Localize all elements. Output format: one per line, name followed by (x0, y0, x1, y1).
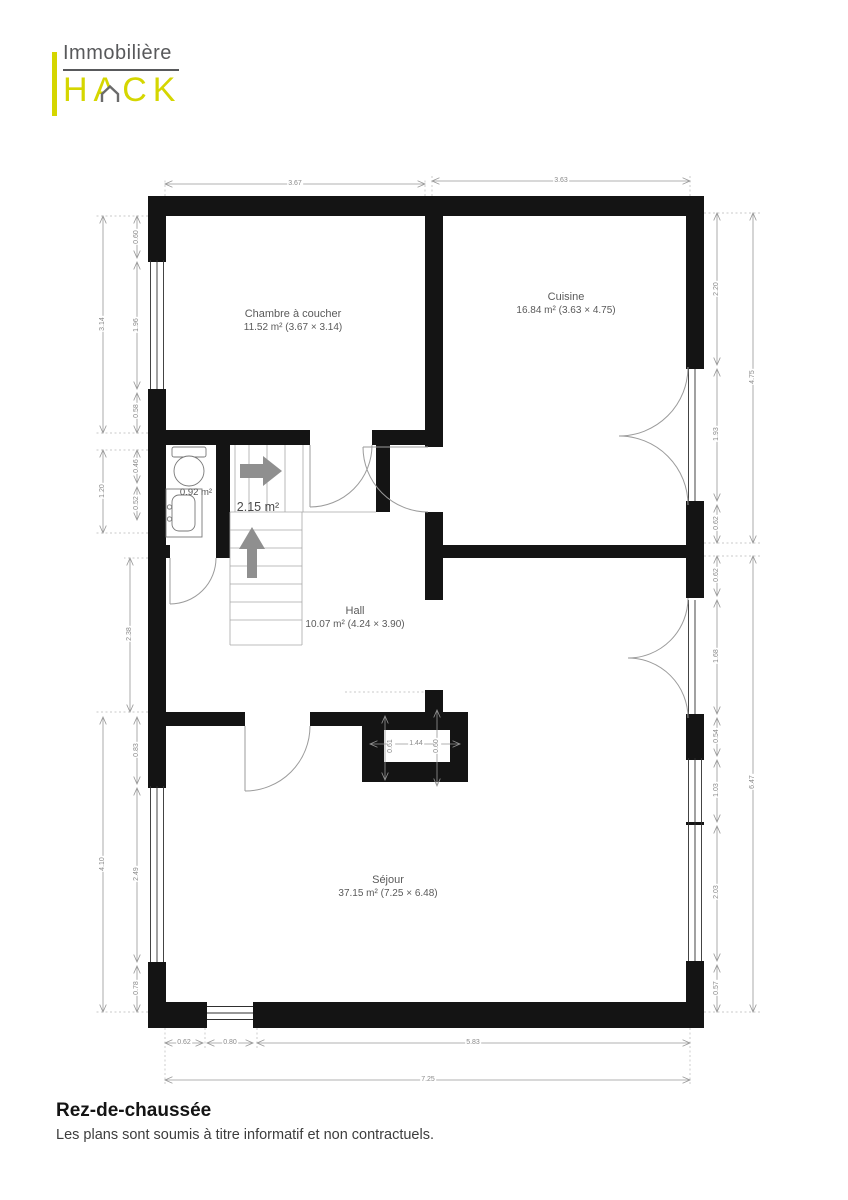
dimension-label: 1.44 (408, 740, 424, 748)
arrow-right-icon (240, 456, 282, 486)
dimension-label: 0.78 (133, 980, 141, 996)
room-area-value: 10.07 m² (305, 619, 344, 630)
room-area: 11.52 m² (3.67 × 3.14) (244, 322, 343, 335)
dimension-label: 2.38 (126, 626, 134, 642)
room-label-chambre: Chambre à coucher 11.52 m² (3.67 × 3.14) (244, 308, 343, 334)
logo-brand-name: Immobilière (63, 42, 181, 65)
dimension-label: 0.62 (713, 515, 721, 531)
dimension-label: 0.62 (713, 567, 721, 583)
walls (148, 196, 704, 1028)
room-label-sejour: Séjour 37.15 m² (7.25 × 6.48) (338, 874, 437, 900)
dimension-label: 7.25 (420, 1076, 436, 1084)
logo-brand-word: HACK (63, 73, 181, 109)
dimension-label: 4.10 (99, 856, 107, 872)
floor-plan-drawing (0, 0, 848, 1200)
dimension-label: 0.52 (133, 495, 141, 511)
room-label-hall: Hall 10.07 m² (4.24 × 3.90) (305, 605, 404, 631)
dimension-label: 4.75 (749, 369, 757, 385)
dimension-label: 2.20 (713, 281, 721, 297)
dimension-label: 1.20 (99, 483, 107, 499)
room-size-value: (3.63 × 4.75) (559, 305, 616, 316)
dimension-label: 3.14 (99, 316, 107, 332)
room-size-value: (4.24 × 3.90) (348, 619, 405, 630)
room-name: Séjour (338, 874, 437, 888)
room-name: Cuisine (516, 291, 615, 305)
stairs-direction-arrows (239, 456, 282, 578)
disclaimer-text: Les plans sont soumis à titre informatif… (56, 1127, 434, 1143)
room-label-cuisine: Cuisine 16.84 m² (3.63 × 4.75) (516, 291, 615, 317)
floor-title: Rez-de-chaussée (56, 1100, 434, 1122)
dimension-label: 0.57 (713, 980, 721, 996)
house-icon (100, 85, 120, 102)
dimension-label: 0.54 (713, 728, 721, 744)
room-area: 37.15 m² (7.25 × 6.48) (338, 888, 437, 901)
dimension-label: 0.46 (133, 458, 141, 474)
room-name: Chambre à coucher (244, 308, 343, 322)
dimension-label: 6.47 (749, 774, 757, 790)
room-label-wc: 0.92 m² (180, 487, 212, 498)
room-label-stairs: 2.15 m² (237, 500, 279, 514)
room-area-value: 37.15 m² (338, 888, 377, 899)
room-area: 10.07 m² (4.24 × 3.90) (305, 619, 404, 632)
logo-accent-bar (52, 52, 57, 116)
room-area-value: 11.52 m² (244, 322, 283, 333)
room-area-value: 16.84 m² (516, 305, 555, 316)
dimension-label: 0.58 (133, 403, 141, 419)
dimension-label: 1.96 (133, 317, 141, 333)
dimension-label: 0.62 (176, 1039, 192, 1047)
dimension-label: 0.60 (133, 229, 141, 245)
room-size-value: (7.25 × 6.48) (381, 888, 438, 899)
dimension-label: 0.61 (387, 738, 395, 754)
dimension-label: 0.80 (222, 1039, 238, 1047)
dimension-label: 1.03 (713, 782, 721, 798)
arrow-up-icon (239, 527, 265, 578)
plan-caption: Rez-de-chaussée Les plans sont soumis à … (56, 1100, 434, 1143)
room-name: Hall (305, 605, 404, 619)
room-area: 16.84 m² (3.63 × 4.75) (516, 305, 615, 318)
dimension-label: 0.83 (133, 742, 141, 758)
dimension-label: 3.63 (553, 177, 569, 185)
dimension-label: 2.49 (133, 866, 141, 882)
floor-plan-page: Immobilière HACK Chambre à coucher 11.52… (0, 0, 848, 1200)
dimension-label: 2.03 (713, 884, 721, 900)
logo: Immobilière HACK (52, 42, 181, 116)
dimension-label: 3.67 (287, 180, 303, 188)
dimension-label: 5.83 (465, 1039, 481, 1047)
room-size-value: (3.67 × 3.14) (285, 322, 342, 333)
dimension-label: 0.60 (433, 738, 441, 754)
dimension-label: 1.93 (713, 426, 721, 442)
dimension-label: 1.68 (713, 648, 721, 664)
toilet-icon (172, 447, 206, 457)
